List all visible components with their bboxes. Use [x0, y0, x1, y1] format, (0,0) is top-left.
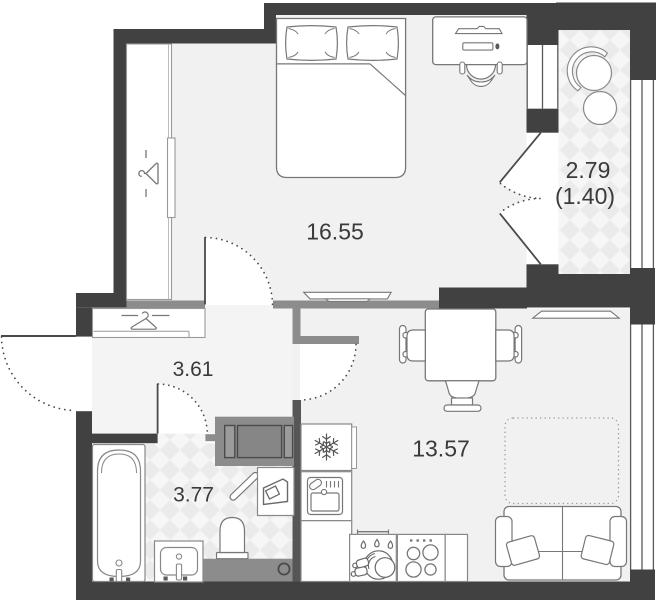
svg-text:16.55: 16.55: [306, 219, 364, 245]
svg-text:(1.40): (1.40): [555, 183, 615, 209]
svg-text:13.57: 13.57: [412, 436, 470, 462]
svg-text:2.79: 2.79: [566, 157, 611, 183]
svg-text:3.61: 3.61: [173, 358, 214, 381]
svg-text:3.77: 3.77: [173, 484, 214, 507]
